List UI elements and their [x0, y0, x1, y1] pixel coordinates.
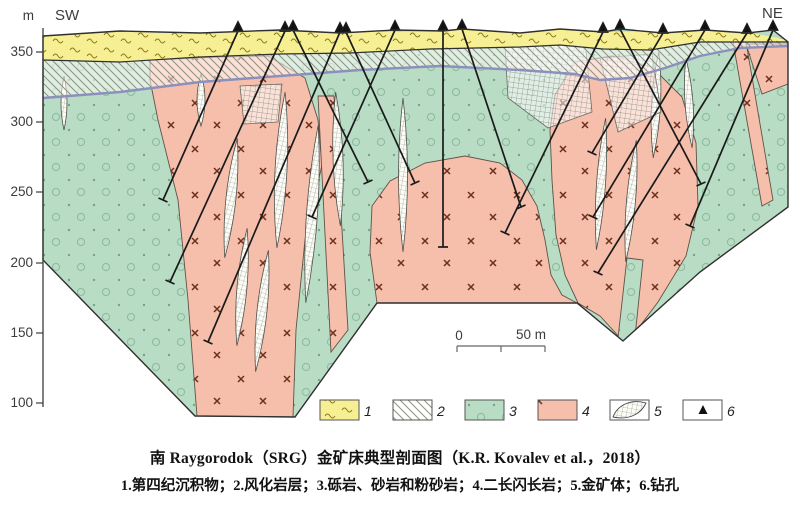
- legend-number: 4: [582, 403, 590, 419]
- legend-number: 6: [727, 403, 735, 419]
- legend-number: 1: [364, 403, 372, 419]
- legend-item-weathered: 2: [393, 400, 445, 420]
- axis-tick-label: 350: [10, 44, 33, 59]
- elevation-axis: m 350 300 250 200 150 100: [10, 8, 43, 410]
- scale-bar: 0 50 m: [455, 327, 546, 352]
- legend-number: 5: [654, 403, 662, 419]
- figure-legend-caption: 1.第四纪沉积物；2.风化岩层；3.砾岩、砂岩和粉砂岩；4.二长闪长岩；5.金矿…: [0, 474, 800, 495]
- cross-section-svg: m 350 300 250 200 150 100 SW NE 0 50 m 1…: [0, 0, 800, 445]
- legend-item-quaternary: 1: [320, 400, 372, 420]
- axis-tick-label: 100: [10, 395, 33, 410]
- axis-tick-marks: [36, 52, 43, 403]
- figure-title: 南 Raygorodok（SRG）金矿床典型剖面图（K.R. Kovalev e…: [0, 446, 800, 468]
- axis-tick-label: 300: [10, 114, 33, 129]
- scale-zero-label: 0: [455, 328, 463, 343]
- geological-cross-section-figure: m 350 300 250 200 150 100 SW NE 0 50 m 1…: [0, 0, 800, 445]
- axis-unit-label: m: [23, 8, 34, 23]
- legend-number: 3: [509, 403, 517, 419]
- legend-item-orebody: 5: [610, 400, 662, 420]
- axis-tick-label: 250: [10, 184, 33, 199]
- axis-tick-label: 150: [10, 325, 33, 340]
- legend: 1 2 3 4 5 6: [320, 400, 735, 420]
- geology-body: [40, 25, 792, 425]
- legend-item-sediments: 3: [465, 400, 517, 420]
- direction-label-sw: SW: [55, 7, 80, 24]
- scale-distance-label: 50 m: [516, 327, 546, 342]
- legend-number: 2: [436, 403, 445, 419]
- axis-tick-label: 200: [10, 255, 33, 270]
- stockwork-zone: [240, 84, 282, 124]
- legend-item-monzodiorite: 4: [538, 400, 590, 420]
- legend-item-drillhole: 6: [683, 400, 735, 420]
- direction-label-ne: NE: [762, 5, 783, 22]
